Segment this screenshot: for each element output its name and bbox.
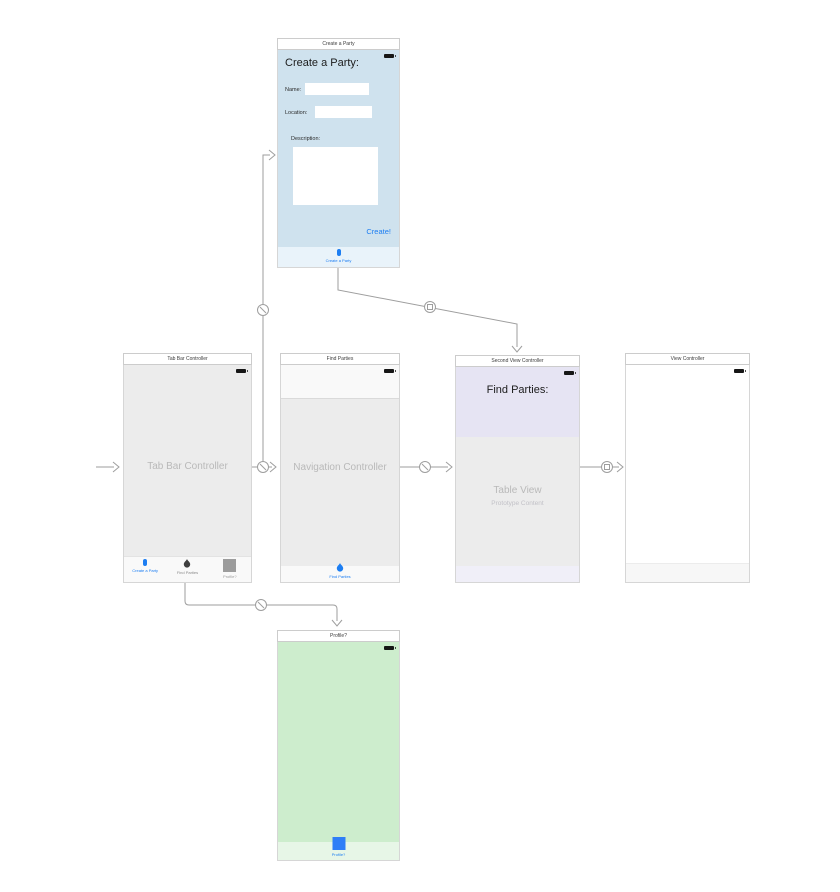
navigation-bar[interactable]	[281, 365, 399, 399]
name-field[interactable]	[305, 83, 369, 95]
second-scene-footer	[456, 566, 579, 582]
scene-title: Create a Party	[322, 41, 354, 47]
tab-item-profile[interactable]: Profile?	[209, 557, 251, 579]
scene-dock-find-parties[interactable]: Find Parties	[280, 353, 400, 365]
create-button[interactable]: Create!	[366, 227, 391, 236]
scene-title: Second View Controller	[491, 358, 543, 364]
location-field[interactable]	[315, 106, 372, 118]
create-party-tab-icon	[143, 559, 147, 566]
battery-icon	[564, 371, 574, 375]
scene-title: Find Parties	[327, 356, 354, 362]
scene-title: Tab Bar Controller	[167, 356, 207, 362]
tab-item-label: Find Parties	[177, 570, 198, 575]
relationship-segue-icon-rootview[interactable]	[420, 462, 431, 473]
scene-title: Profile?	[330, 633, 347, 639]
tab-item-create-a-party[interactable]: Create a Party	[124, 557, 166, 573]
create-party-tab-icon	[337, 249, 341, 256]
profile-view[interactable]: Profile?	[277, 642, 400, 861]
create-party-heading[interactable]: Create a Party:	[285, 57, 359, 69]
table-view-label[interactable]: Table View	[456, 485, 579, 496]
tab-item-label: Find Parties	[329, 574, 350, 579]
find-parties-tab-icon	[183, 559, 191, 568]
scene-dock-second-view-controller[interactable]: Second View Controller	[455, 355, 580, 367]
scene-second-view-controller[interactable]: Second View Controller Find Parties: Tab…	[455, 355, 580, 583]
battery-icon	[236, 369, 246, 373]
tab-bar-controller-view[interactable]: Tab Bar Controller Create a Party Find P…	[123, 365, 252, 583]
battery-icon	[384, 369, 394, 373]
find-parties-tab-icon	[336, 563, 344, 572]
navigation-controller-placeholder-label: Navigation Controller	[281, 462, 399, 473]
scene-profile[interactable]: Profile? Profile?	[277, 630, 400, 861]
tab-bar-controller-placeholder-label: Tab Bar Controller	[124, 461, 251, 472]
navigation-controller-view[interactable]: Navigation Controller Find Parties	[280, 365, 400, 583]
scene-dock-create-a-party[interactable]: Create a Party	[277, 38, 400, 50]
storyboard-canvas[interactable]: Create a Party Create a Party: Name: Loc…	[0, 0, 840, 892]
scene-tab-bar-controller[interactable]: Tab Bar Controller Tab Bar Controller Cr…	[123, 353, 252, 583]
scene-dock-view-controller[interactable]: View Controller	[625, 353, 750, 365]
battery-icon	[384, 646, 394, 650]
relationship-segue-icon-nav[interactable]	[258, 462, 269, 473]
find-parties-heading[interactable]: Find Parties:	[456, 384, 579, 396]
create-party-tabbar[interactable]: Create a Party	[278, 247, 399, 267]
scene-dock-tab-bar-controller[interactable]: Tab Bar Controller	[123, 353, 252, 365]
scene-create-a-party[interactable]: Create a Party Create a Party: Name: Loc…	[277, 38, 400, 268]
profile-tab-label: Profile?	[278, 852, 399, 857]
find-parties-header-panel[interactable]: Find Parties:	[456, 367, 579, 437]
location-label[interactable]: Location:	[285, 110, 307, 116]
tab-bar[interactable]: Create a Party Find Parties Profile?	[124, 556, 251, 582]
prototype-content-label: Prototype Content	[456, 500, 579, 507]
tab-item-label: Create a Party	[132, 568, 158, 573]
profile-scene-tab-icon[interactable]	[332, 837, 345, 850]
tab-item-find-parties[interactable]: Find Parties	[166, 557, 208, 575]
scene-navigation-controller[interactable]: Find Parties Navigation Controller Find …	[280, 353, 400, 583]
scene-dock-profile[interactable]: Profile?	[277, 630, 400, 642]
tab-item-find-parties[interactable]: Find Parties	[281, 563, 399, 579]
profile-tab-icon	[223, 559, 236, 572]
relationship-segue-icon-profile[interactable]	[256, 600, 267, 611]
nav-scene-tabbar[interactable]: Find Parties	[281, 566, 399, 582]
scene-view-controller[interactable]: View Controller	[625, 353, 750, 583]
relationship-segue-icon-create[interactable]	[258, 305, 269, 316]
battery-icon	[734, 369, 744, 373]
battery-icon	[384, 54, 394, 58]
tab-item-create-a-party[interactable]: Create a Party	[278, 247, 399, 263]
description-field[interactable]	[293, 147, 378, 205]
name-label[interactable]: Name:	[285, 87, 301, 93]
description-label[interactable]: Description:	[291, 136, 320, 142]
show-segue-icon-create-to-second[interactable]	[425, 302, 436, 313]
create-party-view[interactable]: Create a Party: Name: Location: Descript…	[277, 50, 400, 268]
tab-item-label: Profile?	[223, 574, 237, 579]
second-view-controller-view[interactable]: Find Parties: Table View Prototype Conte…	[455, 367, 580, 583]
tab-item-label: Create a Party	[326, 258, 352, 263]
view-controller-footer	[626, 563, 749, 582]
scene-title: View Controller	[671, 356, 705, 362]
view-controller-view[interactable]	[625, 365, 750, 583]
show-segue-icon-second-to-vc[interactable]	[602, 462, 613, 473]
